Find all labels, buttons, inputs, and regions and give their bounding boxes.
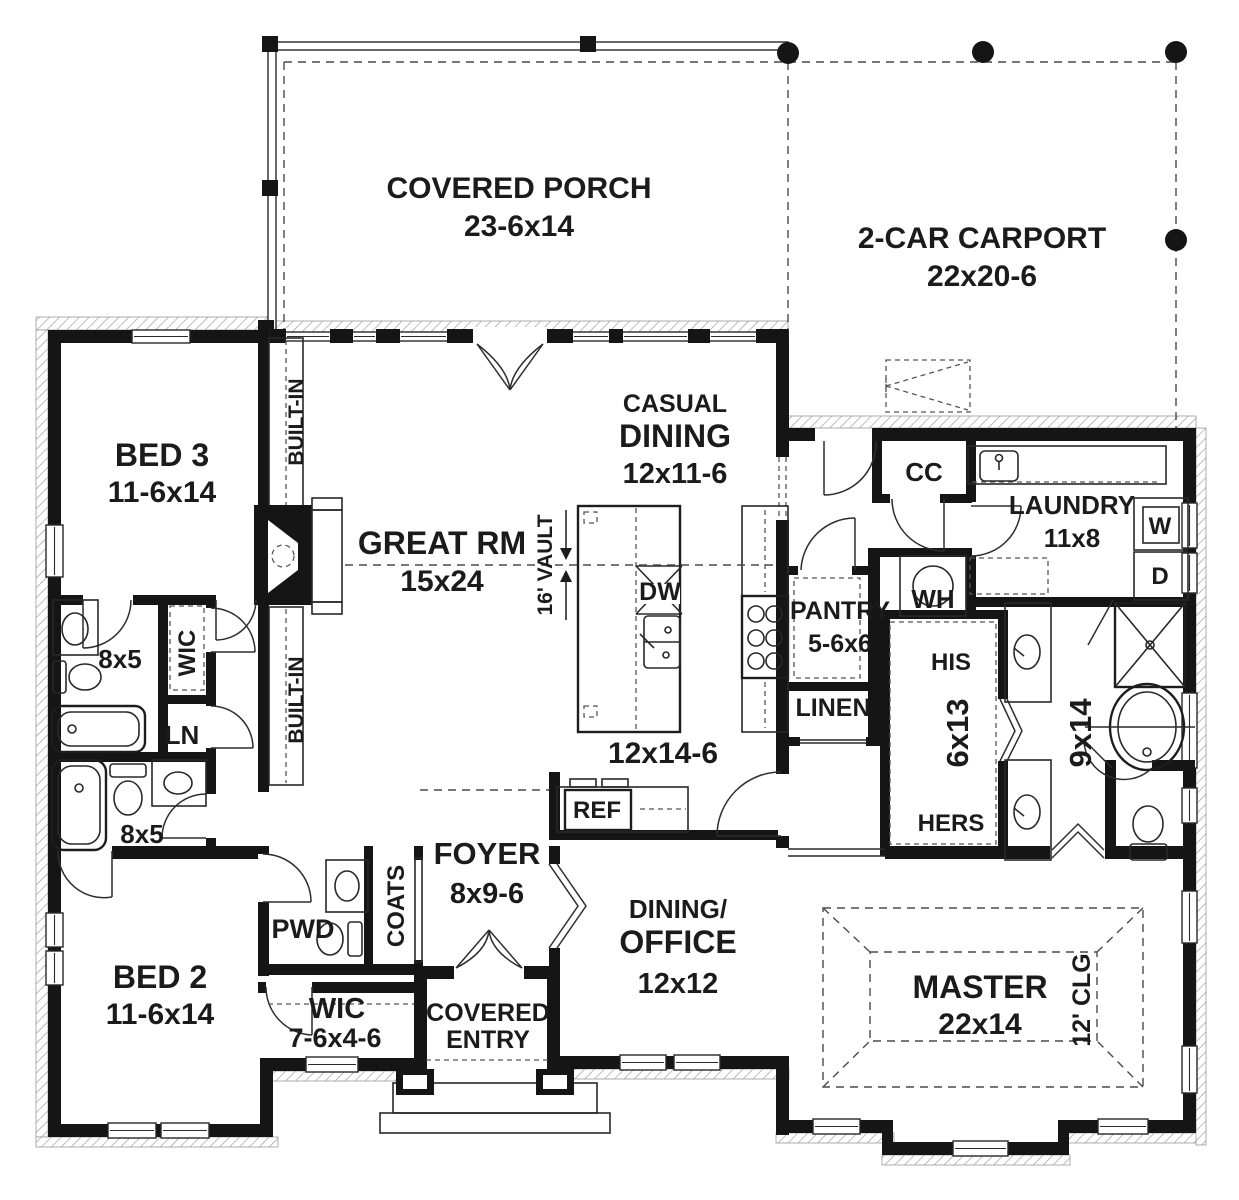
label-dryer: D <box>1151 563 1168 590</box>
shower <box>1115 603 1185 687</box>
label-builtin-upper: BUILT-IN <box>285 378 308 465</box>
label-ref: REF <box>573 797 621 824</box>
label-master: MASTER <box>912 969 1047 1005</box>
label-covered-entry1: COVERED <box>426 999 550 1027</box>
window <box>1182 891 1197 943</box>
window <box>813 1119 860 1134</box>
label-his-hers-size: 6x13 <box>940 699 975 768</box>
carport-column <box>777 42 799 64</box>
label-ln: LN <box>165 720 200 750</box>
window <box>1182 553 1197 593</box>
folding-counter <box>970 558 1048 594</box>
label-bed2-size: 11-6x14 <box>106 998 215 1031</box>
window <box>1182 788 1197 823</box>
label-kitchen-size: 12x14-6 <box>608 737 718 770</box>
carport-column <box>972 41 994 63</box>
label-office2: OFFICE <box>619 924 736 960</box>
window <box>1182 1046 1197 1093</box>
label-office1: DINING/ <box>629 894 727 924</box>
window <box>620 1055 666 1070</box>
window <box>1182 503 1197 548</box>
doors <box>58 344 1152 1035</box>
floor-plan-image: COVERED PORCH 23-6x14 2-CAR CARPORT 22x2… <box>0 0 1239 1200</box>
porch-post <box>262 180 278 196</box>
label-great-rm-size: 15x24 <box>400 565 484 598</box>
label-linen: LINEN <box>796 694 871 722</box>
label-covered-entry2: ENTRY <box>446 1026 530 1054</box>
window <box>306 1057 358 1072</box>
label-great-rm: GREAT RM <box>358 525 526 561</box>
label-laundry: LAUNDRY <box>1009 490 1135 520</box>
label-builtin-lower: BUILT-IN <box>285 656 308 743</box>
entry-column <box>396 1069 434 1095</box>
label-master-clg: 12' CLG <box>1068 953 1096 1046</box>
carport-column <box>1165 41 1187 63</box>
label-pantry-size: 5-6x6 <box>808 630 872 658</box>
label-dw: DW <box>639 578 681 606</box>
pantry-shelves <box>794 578 860 678</box>
carport-column <box>1165 229 1187 251</box>
coats-door-panel <box>415 858 422 962</box>
attic-stair-symbol <box>886 360 970 412</box>
label-cc: CC <box>905 457 943 487</box>
kitchen-fixtures <box>557 506 788 832</box>
kitchen-sink <box>640 616 680 668</box>
label-office-size: 12x12 <box>638 968 719 1000</box>
label-bed2: BED 2 <box>113 959 207 995</box>
label-carport: 2-CAR CARPORT <box>858 222 1106 255</box>
window <box>46 913 63 947</box>
label-wic2: WIC <box>309 993 365 1025</box>
label-wic2-size: 7-6x4-6 <box>288 1023 381 1053</box>
label-covered-porch-size: 23-6x14 <box>464 210 574 243</box>
porch-post <box>262 36 278 52</box>
window <box>1098 1119 1148 1134</box>
label-bath1-size: 8x5 <box>98 644 141 674</box>
label-pwd: PWD <box>272 914 335 944</box>
floor-plan-page: COVERED PORCH 23-6x14 2-CAR CARPORT 22x2… <box>0 0 1239 1200</box>
label-casual-size: 12x11-6 <box>623 458 728 490</box>
label-vault: 16' VAULT <box>534 514 557 615</box>
window <box>46 951 63 985</box>
window <box>161 1123 209 1138</box>
label-master-size: 22x14 <box>938 1008 1022 1041</box>
window <box>953 1141 1008 1156</box>
label-foyer: FOYER <box>434 836 541 871</box>
label-bed3: BED 3 <box>115 437 209 473</box>
master-bath <box>1005 603 1195 860</box>
window <box>46 525 63 577</box>
label-master-bath-size: 9x14 <box>1063 698 1098 768</box>
label-bath2-size: 8x5 <box>120 819 163 849</box>
label-hers: HERS <box>918 810 985 837</box>
label-covered-porch: COVERED PORCH <box>386 172 651 205</box>
label-washer: W <box>1149 513 1172 540</box>
label-pantry: PANTRY <box>790 597 890 625</box>
label-coats: COATS <box>383 865 410 947</box>
label-casual2: DINING <box>619 418 731 454</box>
window <box>674 1055 720 1070</box>
label-wic1: WIC <box>174 630 201 677</box>
window <box>108 1123 156 1138</box>
porch-post <box>580 36 596 52</box>
window <box>132 330 190 343</box>
fireplace <box>254 498 342 614</box>
label-his: HIS <box>931 649 971 676</box>
laundry-sink <box>980 451 1018 481</box>
entry-column <box>536 1069 574 1095</box>
label-casual1: CASUAL <box>623 390 727 418</box>
label-carport-size: 22x20-6 <box>927 260 1037 293</box>
label-wh: WH <box>911 584 954 614</box>
kitchen-island <box>578 506 680 732</box>
label-bed3-size: 11-6x14 <box>108 476 217 509</box>
label-laundry-size: 11x8 <box>1044 523 1100 553</box>
label-foyer-size: 8x9-6 <box>450 878 524 910</box>
